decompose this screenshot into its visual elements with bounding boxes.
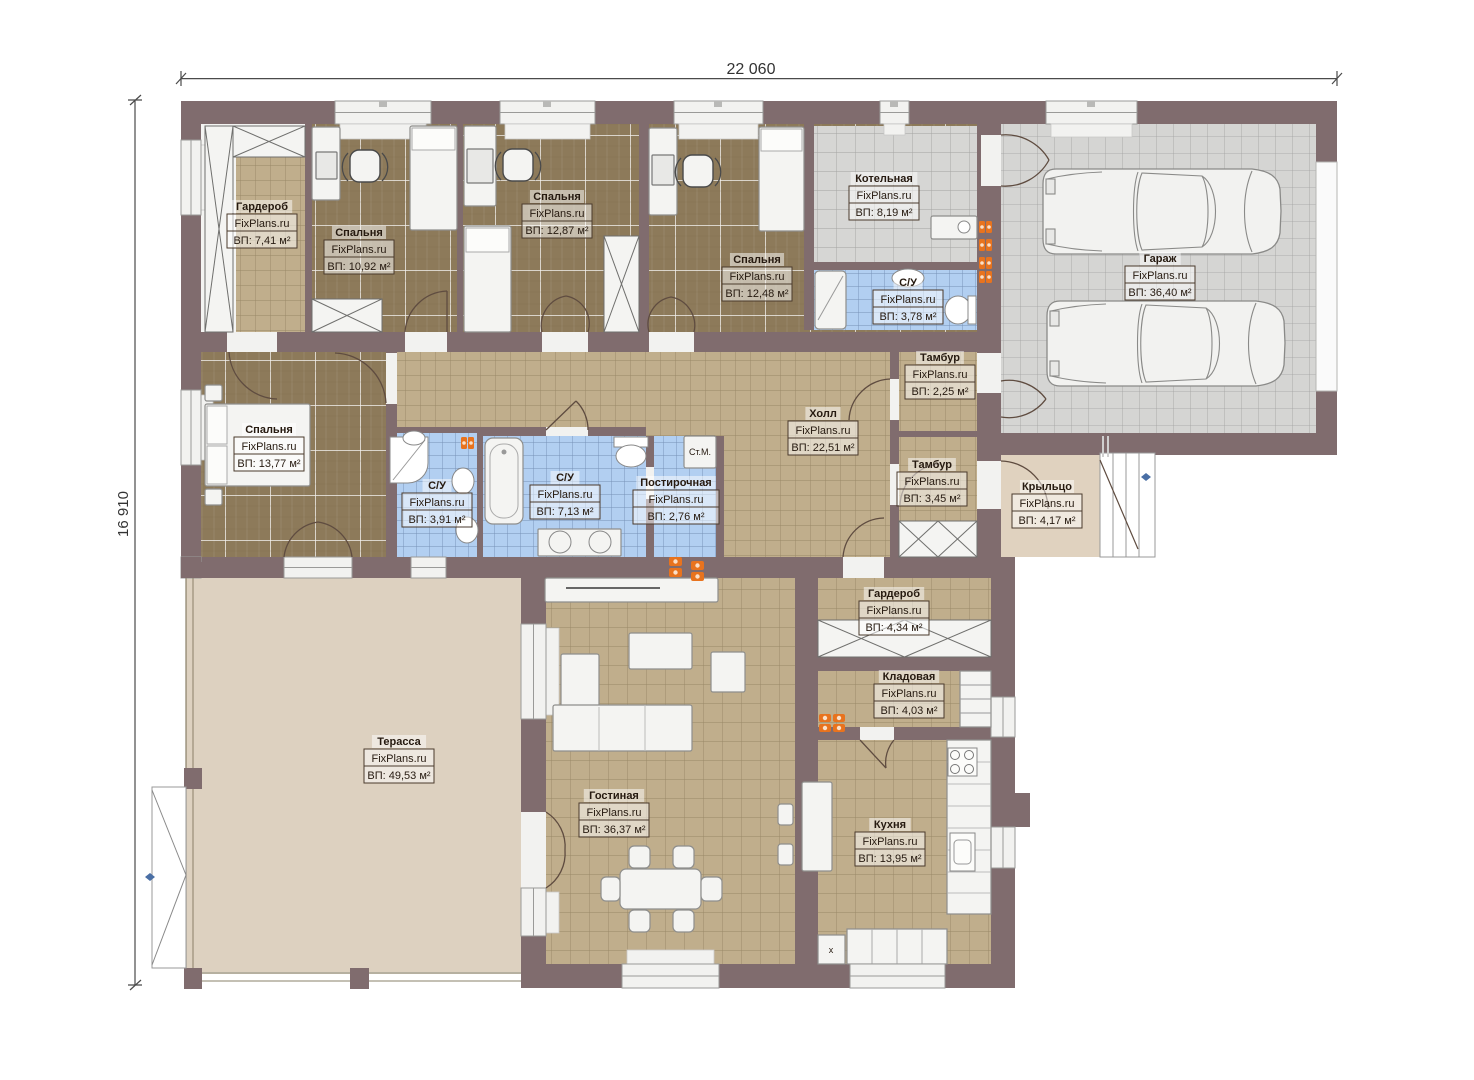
svg-text:FixPlans.ru: FixPlans.ru	[912, 369, 967, 381]
svg-text:ВП: 13,95 м²: ВП: 13,95 м²	[858, 853, 922, 865]
svg-text:Постирочная: Постирочная	[640, 477, 711, 489]
svg-text:ВП: 4,34 м²: ВП: 4,34 м²	[865, 622, 922, 634]
svg-text:Котельная: Котельная	[855, 173, 913, 185]
svg-text:ВП: 3,45 м²: ВП: 3,45 м²	[903, 493, 960, 505]
svg-text:FixPlans.ru: FixPlans.ru	[866, 605, 921, 617]
svg-text:ВП: 7,13 м²: ВП: 7,13 м²	[536, 506, 593, 518]
svg-text:ВП: 4,17 м²: ВП: 4,17 м²	[1018, 515, 1075, 527]
svg-text:FixPlans.ru: FixPlans.ru	[409, 497, 464, 509]
svg-text:FixPlans.ru: FixPlans.ru	[529, 208, 584, 220]
svg-text:FixPlans.ru: FixPlans.ru	[331, 244, 386, 256]
svg-text:Гостиная: Гостиная	[589, 790, 639, 802]
svg-text:ВП: 3,78 м²: ВП: 3,78 м²	[879, 311, 936, 323]
svg-text:Гараж: Гараж	[1144, 253, 1177, 265]
svg-text:С/У: С/У	[899, 277, 917, 289]
svg-text:FixPlans.ru: FixPlans.ru	[537, 489, 592, 501]
svg-text:ВП: 2,76 м²: ВП: 2,76 м²	[647, 511, 704, 523]
svg-text:ВП: 36,37 м²: ВП: 36,37 м²	[582, 824, 646, 836]
svg-text:FixPlans.ru: FixPlans.ru	[904, 476, 959, 488]
svg-text:Спальня: Спальня	[245, 424, 293, 436]
svg-text:Холл: Холл	[809, 408, 837, 420]
svg-text:Спальня: Спальня	[335, 227, 383, 239]
svg-text:ВП: 12,87 м²: ВП: 12,87 м²	[525, 225, 589, 237]
svg-text:FixPlans.ru: FixPlans.ru	[371, 753, 426, 765]
svg-text:ВП: 8,19 м²: ВП: 8,19 м²	[855, 207, 912, 219]
svg-text:FixPlans.ru: FixPlans.ru	[862, 836, 917, 848]
svg-text:ВП: 2,25 м²: ВП: 2,25 м²	[911, 386, 968, 398]
svg-text:ВП: 4,03 м²: ВП: 4,03 м²	[880, 705, 937, 717]
svg-text:FixPlans.ru: FixPlans.ru	[586, 807, 641, 819]
svg-text:Ст.М.: Ст.М.	[689, 447, 711, 457]
svg-text:С/У: С/У	[556, 472, 574, 484]
svg-text:Тамбур: Тамбур	[920, 352, 960, 364]
svg-text:FixPlans.ru: FixPlans.ru	[648, 494, 703, 506]
svg-text:Гардероб: Гардероб	[236, 201, 288, 213]
svg-text:Кладовая: Кладовая	[883, 671, 936, 683]
svg-text:FixPlans.ru: FixPlans.ru	[241, 441, 296, 453]
svg-text:ВП: 10,92 м²: ВП: 10,92 м²	[327, 261, 391, 273]
svg-text:FixPlans.ru: FixPlans.ru	[856, 190, 911, 202]
svg-text:Гардероб: Гардероб	[868, 588, 920, 600]
svg-text:16 910: 16 910	[115, 491, 132, 537]
svg-text:С/У: С/У	[428, 480, 446, 492]
svg-text:FixPlans.ru: FixPlans.ru	[729, 271, 784, 283]
svg-text:ВП: 36,40 м²: ВП: 36,40 м²	[1128, 287, 1192, 299]
svg-text:ВП: 13,77 м²: ВП: 13,77 м²	[237, 458, 301, 470]
svg-text:ВП: 7,41 м²: ВП: 7,41 м²	[233, 235, 290, 247]
svg-text:Спальня: Спальня	[733, 254, 781, 266]
svg-text:Тамбур: Тамбур	[912, 459, 952, 471]
svg-text:FixPlans.ru: FixPlans.ru	[881, 688, 936, 700]
svg-text:ВП: 3,91 м²: ВП: 3,91 м²	[408, 514, 465, 526]
svg-text:Крыльцо: Крыльцо	[1022, 481, 1072, 493]
svg-text:22 060: 22 060	[727, 61, 776, 78]
svg-text:FixPlans.ru: FixPlans.ru	[234, 218, 289, 230]
svg-text:FixPlans.ru: FixPlans.ru	[795, 425, 850, 437]
svg-text:ВП: 12,48 м²: ВП: 12,48 м²	[725, 288, 789, 300]
svg-text:Терасса: Терасса	[377, 736, 421, 748]
svg-text:x: x	[829, 945, 834, 955]
svg-text:Кухня: Кухня	[874, 819, 906, 831]
svg-text:FixPlans.ru: FixPlans.ru	[880, 294, 935, 306]
svg-text:ВП: 22,51 м²: ВП: 22,51 м²	[791, 442, 855, 454]
svg-text:FixPlans.ru: FixPlans.ru	[1019, 498, 1074, 510]
svg-text:Спальня: Спальня	[533, 191, 581, 203]
svg-text:FixPlans.ru: FixPlans.ru	[1132, 270, 1187, 282]
svg-text:ВП: 49,53 м²: ВП: 49,53 м²	[367, 770, 431, 782]
